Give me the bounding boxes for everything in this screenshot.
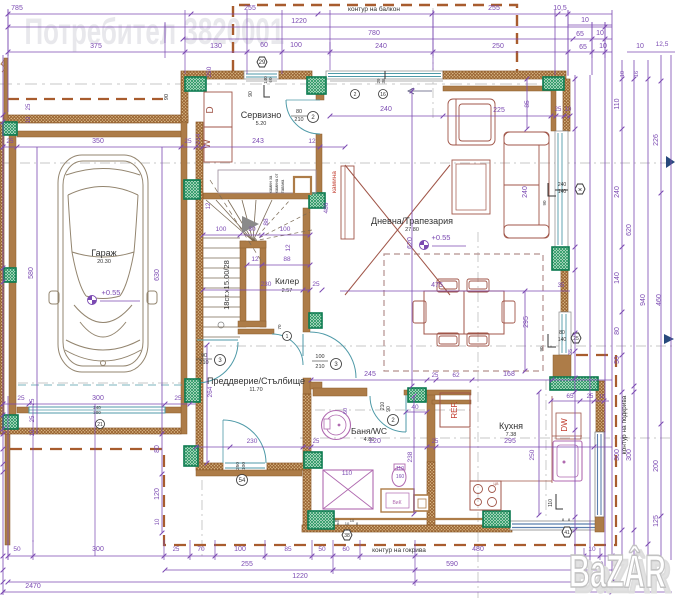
svg-text:50: 50 bbox=[13, 546, 21, 553]
svg-text:230: 230 bbox=[261, 281, 272, 288]
svg-text:255: 255 bbox=[241, 561, 253, 568]
svg-text:65: 65 bbox=[576, 31, 584, 38]
svg-text:250: 250 bbox=[492, 43, 504, 50]
svg-text:214: 214 bbox=[195, 133, 202, 144]
svg-text:80: 80 bbox=[296, 109, 302, 115]
svg-text:контур на балкон: контур на балкон bbox=[348, 5, 400, 13]
svg-text:300: 300 bbox=[93, 410, 101, 415]
svg-text:контур на гокрива: контур на гокрива bbox=[372, 547, 426, 554]
svg-text:25: 25 bbox=[173, 547, 180, 553]
svg-text:25: 25 bbox=[313, 439, 320, 445]
svg-text:BaZÂR: BaZÂR bbox=[569, 545, 666, 597]
svg-text:50: 50 bbox=[614, 356, 621, 364]
svg-text:35: 35 bbox=[568, 349, 574, 355]
svg-text:10: 10 bbox=[565, 107, 572, 113]
svg-text:12,5: 12,5 bbox=[656, 41, 669, 48]
svg-text:120: 120 bbox=[154, 488, 161, 500]
svg-text:250: 250 bbox=[235, 462, 241, 470]
svg-text:90: 90 bbox=[542, 200, 547, 206]
svg-text:475: 475 bbox=[431, 282, 443, 289]
svg-text:240: 240 bbox=[614, 186, 621, 198]
svg-text:240: 240 bbox=[522, 186, 529, 198]
svg-text:10: 10 bbox=[581, 17, 589, 24]
svg-text:38: 38 bbox=[344, 533, 350, 539]
svg-text:тавана: тавана bbox=[280, 179, 285, 193]
svg-text:25: 25 bbox=[6, 138, 14, 145]
svg-text:25: 25 bbox=[312, 281, 320, 288]
svg-text:2: 2 bbox=[354, 92, 357, 98]
svg-text:25: 25 bbox=[26, 103, 32, 110]
svg-text:18ст.х15.00/28: 18ст.х15.00/28 bbox=[222, 260, 231, 310]
svg-text:110: 110 bbox=[614, 98, 621, 109]
svg-text:375: 375 bbox=[90, 43, 102, 50]
svg-text:100: 100 bbox=[280, 226, 291, 233]
svg-text:110: 110 bbox=[548, 499, 554, 507]
svg-text:25: 25 bbox=[573, 336, 579, 342]
svg-text:90: 90 bbox=[201, 353, 207, 359]
svg-text:780: 780 bbox=[368, 30, 380, 37]
svg-text:10: 10 bbox=[620, 71, 626, 77]
svg-text:10: 10 bbox=[599, 43, 607, 50]
svg-text:+0.55: +0.55 bbox=[432, 233, 451, 242]
svg-text:350: 350 bbox=[92, 138, 104, 145]
svg-text:21: 21 bbox=[97, 422, 103, 428]
svg-text:220: 220 bbox=[369, 438, 381, 445]
svg-text:80: 80 bbox=[559, 330, 565, 336]
svg-text:80: 80 bbox=[614, 327, 621, 335]
svg-text:25: 25 bbox=[432, 439, 439, 445]
svg-text:60: 60 bbox=[268, 77, 273, 83]
svg-text:29: 29 bbox=[259, 60, 266, 66]
svg-text:255: 255 bbox=[244, 5, 256, 12]
svg-text:70: 70 bbox=[277, 324, 282, 330]
svg-text:10: 10 bbox=[599, 394, 605, 400]
svg-text:238: 238 bbox=[407, 451, 414, 462]
svg-text:60: 60 bbox=[260, 42, 268, 49]
svg-text:12: 12 bbox=[206, 202, 212, 209]
svg-text:300: 300 bbox=[614, 449, 621, 461]
svg-text:16: 16 bbox=[380, 92, 386, 98]
svg-text:300: 300 bbox=[92, 395, 104, 402]
svg-text:12: 12 bbox=[251, 256, 259, 263]
svg-text:2.57: 2.57 bbox=[282, 288, 293, 294]
svg-text:110: 110 bbox=[396, 466, 404, 472]
svg-text:12: 12 bbox=[285, 244, 292, 252]
svg-text:16: 16 bbox=[634, 71, 640, 77]
svg-text:940: 940 bbox=[640, 294, 647, 306]
svg-text:Килер: Килер bbox=[275, 276, 299, 286]
svg-text:D: D bbox=[205, 106, 216, 113]
svg-text:62: 62 bbox=[452, 372, 460, 379]
svg-text:REF.: REF. bbox=[450, 401, 459, 418]
svg-text:контур на подкрива: контур на подкрива bbox=[621, 395, 628, 454]
svg-text:264: 264 bbox=[207, 386, 214, 397]
svg-text:70: 70 bbox=[197, 546, 205, 553]
svg-text:Кухня: Кухня bbox=[499, 421, 523, 431]
svg-text:2470: 2470 bbox=[25, 583, 41, 590]
svg-text:100: 100 bbox=[234, 546, 246, 553]
svg-text:12: 12 bbox=[308, 138, 316, 145]
svg-text:230: 230 bbox=[247, 438, 258, 445]
svg-text:54: 54 bbox=[239, 478, 246, 484]
svg-text:DW: DW bbox=[560, 418, 569, 432]
svg-text:10: 10 bbox=[350, 518, 355, 523]
svg-text:210: 210 bbox=[294, 117, 303, 123]
svg-text:90: 90 bbox=[164, 94, 170, 100]
svg-text:10: 10 bbox=[26, 116, 32, 123]
svg-text:168: 168 bbox=[503, 371, 515, 378]
svg-text:камина от: камина от bbox=[274, 173, 279, 193]
svg-text:486: 486 bbox=[323, 202, 330, 213]
svg-text:100: 100 bbox=[216, 226, 227, 233]
svg-text:85: 85 bbox=[284, 546, 292, 553]
svg-text:60: 60 bbox=[342, 546, 350, 553]
svg-text:225: 225 bbox=[493, 107, 505, 114]
svg-text:камина: камина bbox=[331, 171, 338, 193]
svg-text:210: 210 bbox=[315, 364, 324, 370]
svg-text:160: 160 bbox=[396, 474, 405, 480]
svg-text:240: 240 bbox=[558, 182, 567, 188]
svg-text:ВиК: ВиК bbox=[392, 500, 401, 506]
svg-text:620: 620 bbox=[407, 237, 414, 249]
svg-text:295: 295 bbox=[504, 438, 516, 445]
svg-text:камин за: камин за bbox=[268, 175, 273, 193]
svg-text:580: 580 bbox=[28, 267, 35, 279]
svg-text:240: 240 bbox=[380, 106, 392, 113]
svg-text:630: 630 bbox=[154, 269, 161, 281]
svg-text:65: 65 bbox=[566, 393, 574, 400]
svg-text:85: 85 bbox=[524, 100, 531, 108]
svg-text:1220: 1220 bbox=[291, 18, 307, 25]
svg-text:300: 300 bbox=[92, 546, 104, 553]
svg-text:200: 200 bbox=[653, 460, 660, 472]
svg-text:Баня/WC: Баня/WC bbox=[351, 426, 387, 436]
svg-text:11.70: 11.70 bbox=[249, 387, 262, 393]
svg-text:250: 250 bbox=[529, 449, 536, 460]
svg-text:100: 100 bbox=[290, 42, 302, 49]
svg-text:30: 30 bbox=[248, 226, 256, 233]
svg-text:65: 65 bbox=[579, 44, 587, 51]
svg-text:295: 295 bbox=[523, 316, 530, 328]
svg-text:1: 1 bbox=[286, 334, 289, 340]
svg-text:480: 480 bbox=[472, 546, 484, 553]
svg-text:110: 110 bbox=[342, 470, 353, 477]
svg-text:41: 41 bbox=[564, 530, 570, 536]
svg-text:25: 25 bbox=[555, 107, 562, 113]
svg-text:50: 50 bbox=[318, 546, 326, 553]
svg-text:10: 10 bbox=[345, 521, 350, 526]
svg-text:88: 88 bbox=[283, 256, 291, 263]
svg-text:Сервизно: Сервизно bbox=[241, 110, 281, 120]
svg-text:250: 250 bbox=[206, 66, 213, 77]
svg-text:10: 10 bbox=[636, 43, 644, 50]
svg-text:5.20: 5.20 bbox=[256, 121, 267, 127]
svg-text:90: 90 bbox=[248, 91, 254, 97]
svg-text:88: 88 bbox=[263, 218, 270, 226]
svg-text:Потребител 3820001: Потребител 3820001 bbox=[25, 10, 285, 52]
svg-text:60: 60 bbox=[343, 408, 349, 414]
svg-text:40: 40 bbox=[411, 404, 419, 411]
svg-text:243: 243 bbox=[252, 138, 264, 145]
svg-text:25: 25 bbox=[17, 395, 25, 402]
svg-text:226: 226 bbox=[653, 134, 660, 146]
svg-text:140: 140 bbox=[614, 272, 621, 284]
svg-text:130: 130 bbox=[210, 43, 222, 50]
svg-text:35: 35 bbox=[558, 283, 565, 289]
svg-text:620: 620 bbox=[626, 224, 633, 236]
svg-text:+0.55: +0.55 bbox=[102, 288, 121, 297]
svg-text:10: 10 bbox=[596, 30, 604, 37]
svg-text:100: 100 bbox=[241, 462, 247, 470]
svg-text:590: 590 bbox=[446, 561, 458, 568]
svg-text:10: 10 bbox=[155, 518, 161, 525]
svg-text:25: 25 bbox=[174, 395, 182, 402]
svg-text:100: 100 bbox=[315, 354, 324, 360]
svg-text:255: 255 bbox=[488, 5, 500, 12]
svg-text:90: 90 bbox=[386, 406, 392, 412]
svg-text:140: 140 bbox=[558, 337, 567, 343]
svg-text:90: 90 bbox=[539, 346, 544, 352]
svg-text:Преддверие/Стълбище: Преддверие/Стълбище bbox=[207, 376, 305, 386]
svg-text:80: 80 bbox=[154, 445, 161, 453]
svg-text:20.30: 20.30 bbox=[97, 259, 111, 265]
svg-text:460: 460 bbox=[656, 294, 663, 306]
svg-text:240: 240 bbox=[375, 43, 387, 50]
svg-text:ЦВ: ЦВ bbox=[494, 482, 500, 486]
svg-text:140: 140 bbox=[558, 189, 567, 195]
svg-text:25: 25 bbox=[587, 394, 594, 400]
svg-text:1220: 1220 bbox=[292, 573, 308, 580]
svg-text:125: 125 bbox=[653, 515, 660, 527]
svg-text:25: 25 bbox=[184, 138, 192, 145]
svg-text:785: 785 bbox=[11, 5, 23, 12]
svg-text:245: 245 bbox=[364, 371, 376, 378]
svg-text:Гараж: Гараж bbox=[91, 248, 116, 258]
